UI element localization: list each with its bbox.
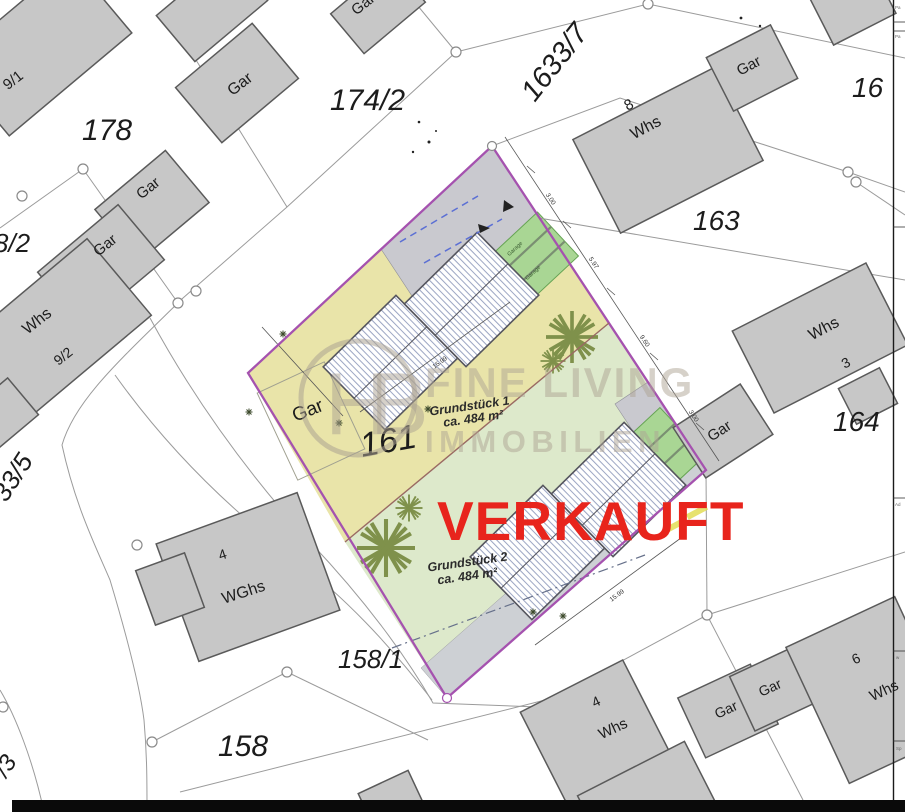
parcel-label-16: 16 <box>852 72 884 103</box>
survey-mark-icon <box>560 613 567 620</box>
form-strip-mark: Ad <box>895 502 901 507</box>
survey-mark-icon <box>530 609 537 616</box>
form-strip-mark: Sp <box>896 746 902 751</box>
watermark: H B FINE LIVING IMMOBILIEN <box>301 341 694 459</box>
parcel-label-164: 164 <box>833 406 880 437</box>
watermark-monogram-b: B <box>370 354 429 453</box>
form-strip-mark: Pa <box>895 34 901 39</box>
parcel-label-158: 158 <box>218 730 268 763</box>
parcel-label-178: 178 <box>82 114 132 147</box>
form-strip-mark: Pa <box>895 5 901 10</box>
bottom-black-bar <box>12 800 905 812</box>
parcel-label-174-2: 174/2 <box>330 84 405 117</box>
tree-icon <box>357 519 415 577</box>
site-plan: Garage Garage Garage Garage <box>0 0 905 812</box>
parcel-label-163: 163 <box>693 205 740 236</box>
parcel-label-8-2: 8/2 <box>0 228 31 258</box>
survey-mark-icon <box>246 409 253 416</box>
site-plan-canvas: Garage Garage Garage Garage <box>0 0 905 812</box>
parcel-label-158-1: 158/1 <box>338 644 403 674</box>
sold-stamp: VERKAUFT <box>437 490 744 552</box>
survey-mark-icon <box>280 331 287 338</box>
watermark-brand-line2: IMMOBILIEN <box>425 424 666 459</box>
watermark-brand-line1: FINE LIVING <box>425 359 694 406</box>
